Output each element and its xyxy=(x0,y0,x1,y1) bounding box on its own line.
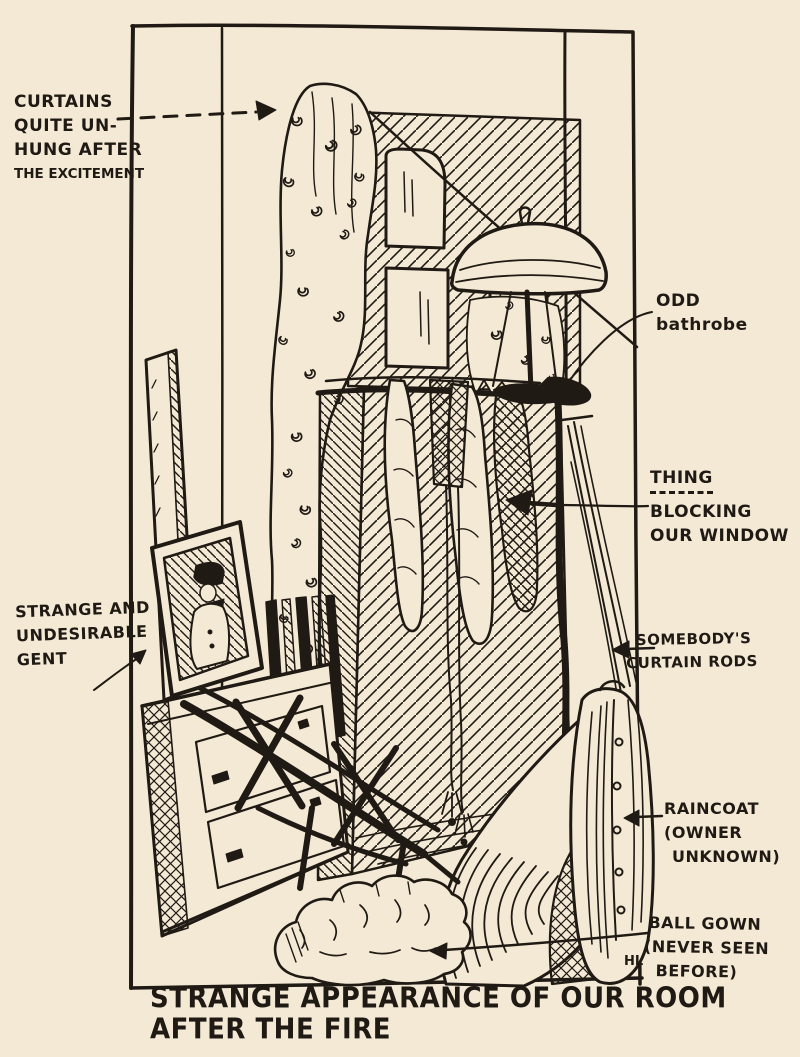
ballgown-label-line2: (NEVER SEEN xyxy=(644,935,770,961)
curtain-rods-sketch xyxy=(562,416,636,700)
curtains-arrowhead xyxy=(256,101,276,120)
gent-portrait xyxy=(152,522,262,696)
rods-label: SOMEBODY'S CURTAIN RODS xyxy=(636,627,758,675)
thing-leader xyxy=(560,505,648,506)
rods-label-line1: SOMEBODY'S xyxy=(636,627,758,652)
raincoat-label: RAINCOAT (OWNER UNKNOWN) xyxy=(664,797,780,869)
thing-label-title: THING xyxy=(650,466,713,494)
curtains-label-line1: CURTAINS xyxy=(14,90,144,114)
curtains-label: CURTAINS QUITE UN- HUNG AFTER THE EXCITE… xyxy=(14,90,144,186)
curtains-label-line4: THE EXCITEMENT xyxy=(14,162,144,186)
gent-label: STRANGE AND UNDESIRABLE GENT xyxy=(15,596,152,673)
curtains-label-line3: HUNG AFTER xyxy=(14,138,144,162)
raincoat-label-line3: UNKNOWN) xyxy=(672,845,780,869)
thing-label: THING BLOCKING OUR WINDOW xyxy=(650,466,789,548)
ballgown-label-line1: BALL GOWN xyxy=(648,911,770,937)
thing-label-line3: OUR WINDOW xyxy=(650,524,789,548)
bathrobe-label: ODD bathrobe xyxy=(656,289,748,337)
curtains-label-line2: QUITE UN- xyxy=(14,114,144,138)
gent-label-line2: UNDESIRABLE xyxy=(16,620,151,649)
gent-label-line3: GENT xyxy=(16,644,151,673)
bathrobe-label-line1: ODD xyxy=(656,289,748,313)
caption-line1: STRANGE APPEARANCE OF OUR ROOM xyxy=(150,983,727,1016)
artist-initials: HL xyxy=(624,954,643,969)
raincoat-label-line2: (OWNER xyxy=(664,821,780,845)
raincoat-label-line1: RAINCOAT xyxy=(664,797,780,821)
ballgown-label-line3: BEFORE) xyxy=(655,959,769,985)
illustration-page: CURTAINS QUITE UN- HUNG AFTER THE EXCITE… xyxy=(0,0,800,1057)
ballgown-label: BALL GOWN (NEVER SEEN BEFORE) xyxy=(647,911,769,985)
thing-label-line2: BLOCKING xyxy=(650,500,789,524)
caption-line2: AFTER THE FIRE xyxy=(150,1014,391,1047)
rods-label-line2: CURTAIN RODS xyxy=(626,650,758,675)
raincoat-leader xyxy=(636,816,662,817)
bathrobe-label-line2: bathrobe xyxy=(656,313,748,337)
ball-gown-sketch xyxy=(275,876,470,985)
thing-leader-thick xyxy=(528,503,556,505)
